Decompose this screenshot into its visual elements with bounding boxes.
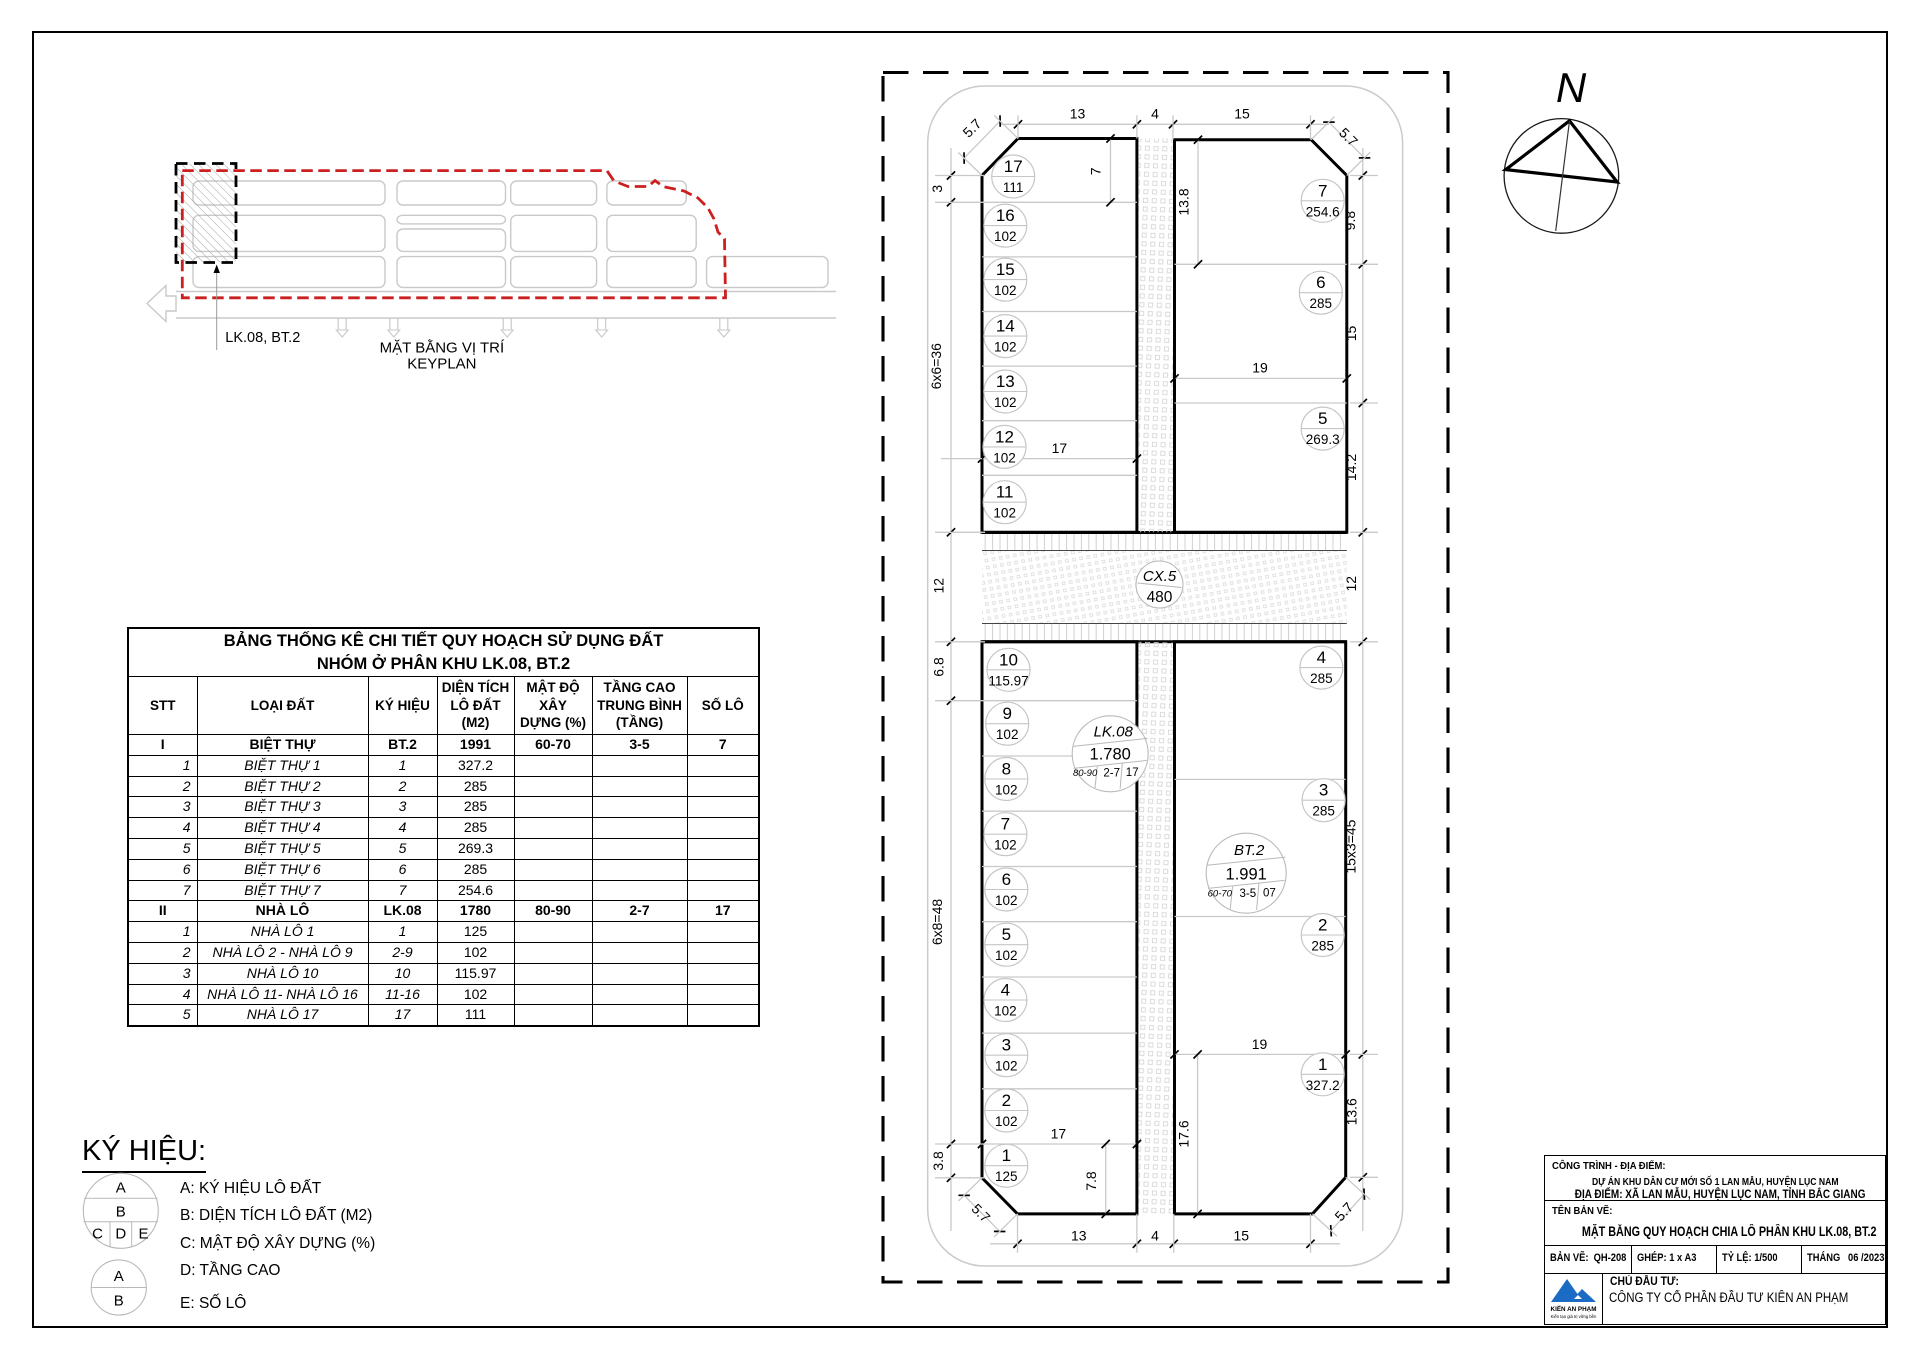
svg-text:C: C bbox=[92, 1226, 103, 1243]
svg-text:3.8: 3.8 bbox=[930, 1151, 946, 1171]
svg-text:12: 12 bbox=[930, 578, 946, 594]
svg-text:7: 7 bbox=[1001, 815, 1010, 834]
svg-text:CX.5: CX.5 bbox=[1143, 568, 1177, 585]
svg-text:LK.08: LK.08 bbox=[1094, 723, 1134, 740]
svg-text:B: B bbox=[114, 1293, 124, 1310]
svg-text:12: 12 bbox=[1343, 576, 1359, 592]
svg-text:11: 11 bbox=[996, 483, 1014, 502]
svg-text:16: 16 bbox=[996, 206, 1015, 225]
svg-text:1.780: 1.780 bbox=[1090, 745, 1131, 763]
svg-text:13: 13 bbox=[1071, 1228, 1087, 1244]
svg-text:14: 14 bbox=[996, 317, 1015, 336]
svg-text:269.3: 269.3 bbox=[1306, 432, 1340, 447]
svg-text:A: A bbox=[116, 1180, 126, 1197]
svg-text:2-7: 2-7 bbox=[1103, 768, 1120, 780]
svg-text:3: 3 bbox=[1002, 1036, 1011, 1055]
svg-text:4: 4 bbox=[1151, 106, 1159, 122]
svg-text:E: E bbox=[138, 1226, 148, 1243]
svg-text:102: 102 bbox=[994, 395, 1017, 410]
svg-text:102: 102 bbox=[993, 506, 1016, 521]
svg-text:13.6: 13.6 bbox=[1344, 1098, 1360, 1125]
svg-text:8: 8 bbox=[1002, 760, 1011, 779]
svg-text:5: 5 bbox=[1002, 925, 1011, 944]
svg-text:D: D bbox=[115, 1226, 126, 1243]
svg-text:4: 4 bbox=[1317, 648, 1326, 667]
svg-text:80-90: 80-90 bbox=[1073, 768, 1098, 779]
svg-text:102: 102 bbox=[995, 1059, 1018, 1074]
svg-text:KEYPLAN: KEYPLAN bbox=[407, 356, 476, 373]
svg-text:7.8: 7.8 bbox=[1083, 1171, 1099, 1191]
svg-text:285: 285 bbox=[1310, 296, 1333, 311]
svg-text:LK.08, BT.2: LK.08, BT.2 bbox=[225, 330, 300, 346]
svg-text:102: 102 bbox=[994, 283, 1017, 298]
svg-text:115.97: 115.97 bbox=[988, 673, 1028, 688]
svg-text:285: 285 bbox=[1311, 939, 1334, 954]
svg-text:15: 15 bbox=[1234, 1228, 1250, 1244]
svg-text:5: 5 bbox=[1318, 409, 1327, 428]
svg-text:19: 19 bbox=[1252, 1036, 1268, 1052]
svg-text:102: 102 bbox=[994, 229, 1017, 244]
svg-text:15: 15 bbox=[1343, 326, 1359, 342]
svg-text:15: 15 bbox=[1234, 106, 1250, 122]
svg-text:9: 9 bbox=[1002, 704, 1011, 723]
svg-text:6x8=48: 6x8=48 bbox=[929, 899, 945, 946]
svg-text:1: 1 bbox=[1318, 1055, 1327, 1074]
svg-text:5.7: 5.7 bbox=[1336, 124, 1361, 149]
svg-text:12: 12 bbox=[995, 427, 1014, 446]
svg-text:19: 19 bbox=[1252, 360, 1268, 376]
svg-text:254.6: 254.6 bbox=[1306, 204, 1340, 219]
svg-text:15: 15 bbox=[996, 260, 1015, 279]
svg-text:3: 3 bbox=[1319, 781, 1328, 800]
svg-text:125: 125 bbox=[995, 1169, 1018, 1184]
svg-text:15x3=45: 15x3=45 bbox=[1342, 819, 1358, 873]
svg-text:9.8: 9.8 bbox=[1342, 211, 1358, 231]
svg-text:10: 10 bbox=[999, 650, 1018, 669]
svg-text:07: 07 bbox=[1263, 887, 1276, 899]
svg-text:102: 102 bbox=[994, 838, 1017, 853]
svg-text:111: 111 bbox=[1003, 180, 1024, 195]
svg-text:2: 2 bbox=[1318, 916, 1327, 935]
svg-text:285: 285 bbox=[1310, 671, 1333, 686]
svg-text:17: 17 bbox=[1126, 767, 1139, 779]
svg-text:MẶT BẰNG VỊ TRÍ: MẶT BẰNG VỊ TRÍ bbox=[380, 339, 505, 357]
svg-text:102: 102 bbox=[995, 783, 1018, 798]
svg-text:2: 2 bbox=[1002, 1091, 1011, 1110]
svg-text:102: 102 bbox=[996, 727, 1019, 742]
svg-text:3-5: 3-5 bbox=[1239, 888, 1256, 900]
svg-text:480: 480 bbox=[1147, 589, 1173, 606]
svg-text:17.6: 17.6 bbox=[1175, 1120, 1191, 1147]
svg-text:17: 17 bbox=[1004, 157, 1023, 176]
svg-text:6: 6 bbox=[1316, 273, 1325, 292]
svg-text:6.8: 6.8 bbox=[930, 657, 946, 677]
svg-text:102: 102 bbox=[994, 340, 1017, 355]
svg-text:13: 13 bbox=[996, 372, 1015, 391]
svg-text:Kiến tạo giá trị vững bền: Kiến tạo giá trị vững bền bbox=[1551, 1314, 1597, 1319]
svg-text:1: 1 bbox=[1002, 1146, 1011, 1165]
svg-text:60-70: 60-70 bbox=[1208, 888, 1233, 899]
svg-text:327.2: 327.2 bbox=[1306, 1078, 1340, 1093]
svg-text:3: 3 bbox=[929, 185, 945, 193]
svg-text:102: 102 bbox=[995, 1114, 1018, 1129]
svg-text:A: A bbox=[114, 1268, 124, 1285]
svg-text:13: 13 bbox=[1070, 106, 1086, 122]
svg-text:6x6=36: 6x6=36 bbox=[928, 343, 944, 390]
svg-text:B: B bbox=[116, 1204, 126, 1221]
svg-text:102: 102 bbox=[993, 450, 1016, 465]
svg-text:6: 6 bbox=[1002, 870, 1011, 889]
svg-text:N: N bbox=[1556, 66, 1587, 111]
svg-text:102: 102 bbox=[994, 1004, 1017, 1019]
svg-text:1.991: 1.991 bbox=[1226, 865, 1267, 883]
svg-text:285: 285 bbox=[1312, 804, 1335, 819]
svg-text:4: 4 bbox=[1001, 981, 1010, 1000]
svg-text:BT.2: BT.2 bbox=[1234, 842, 1265, 859]
svg-text:7: 7 bbox=[1318, 181, 1327, 200]
svg-text:KIẾN AN PHẠM: KIẾN AN PHẠM bbox=[1551, 1303, 1597, 1313]
svg-text:102: 102 bbox=[995, 948, 1018, 963]
svg-text:14.2: 14.2 bbox=[1343, 454, 1359, 481]
svg-text:7: 7 bbox=[1088, 167, 1104, 175]
svg-text:4: 4 bbox=[1151, 1228, 1159, 1244]
svg-text:5.7: 5.7 bbox=[959, 115, 984, 140]
svg-text:17: 17 bbox=[1052, 440, 1068, 456]
svg-text:102: 102 bbox=[995, 893, 1018, 908]
svg-text:5.7: 5.7 bbox=[1331, 1199, 1356, 1224]
svg-text:13.8: 13.8 bbox=[1176, 188, 1192, 215]
svg-text:17: 17 bbox=[1051, 1126, 1067, 1142]
